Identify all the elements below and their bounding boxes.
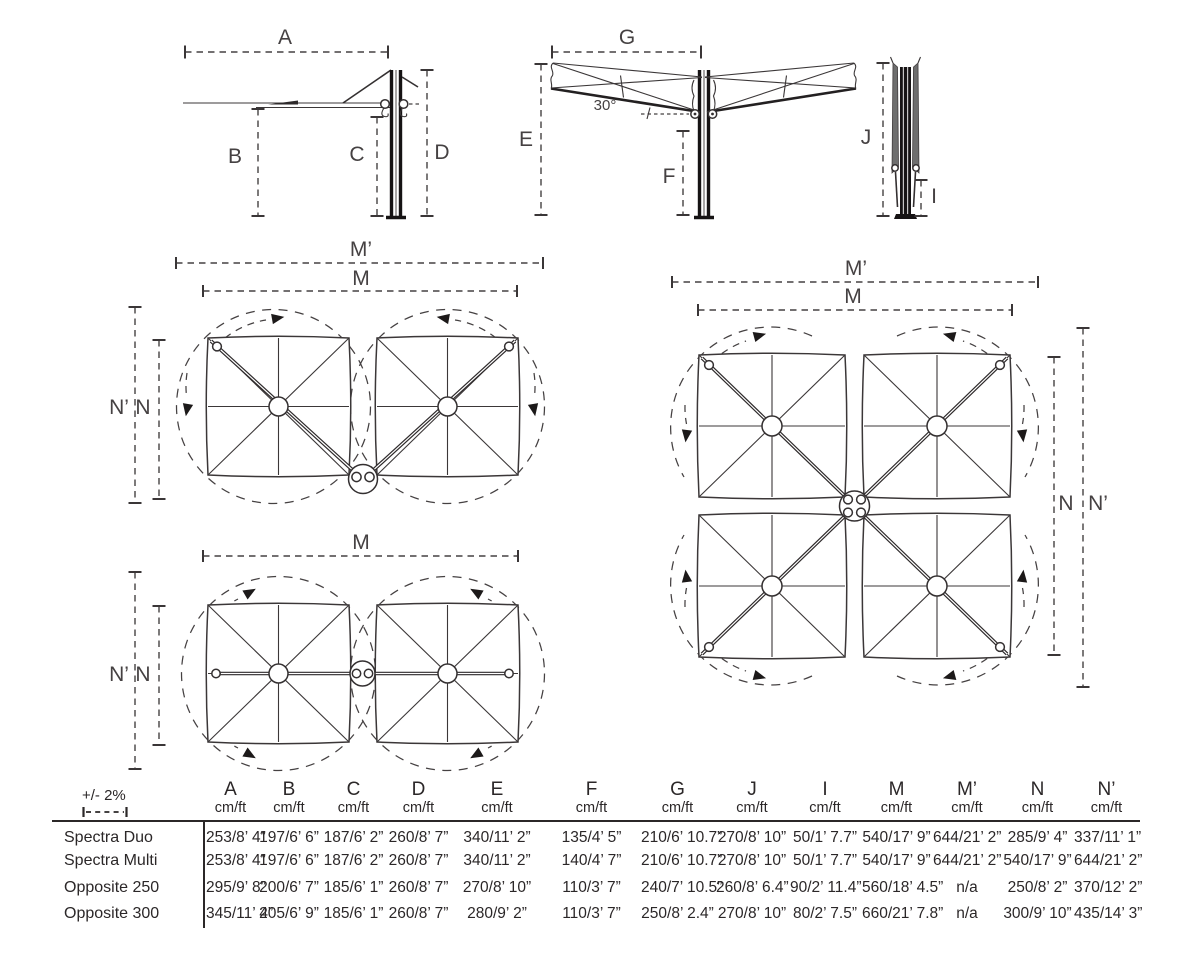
table-cell: 340/11’ 2” [451, 821, 543, 848]
rotation-arrow [942, 329, 957, 342]
rotation-arrow [753, 329, 768, 342]
plan-view-duo-corner: M’ M N’ N [109, 238, 544, 504]
col-header-b: Bcm/ft [257, 779, 321, 821]
col-header-m: Mcm/ft [861, 779, 932, 821]
table-cell: 210/6’ 10.7” [640, 848, 715, 875]
table-cell: 253/8’ 4” [204, 821, 257, 848]
edge-ring [212, 669, 220, 677]
table-cell: 260/8’ 6.4” [715, 875, 789, 902]
pole-top-view [350, 661, 375, 686]
corner-ring [213, 342, 222, 351]
dim-g: G [552, 26, 701, 59]
dim-label-e: E [519, 128, 533, 151]
col-header-a: Acm/ft [204, 779, 257, 821]
table-row: Opposite 250 295/9’ 8” 200/6’ 7” 185/6’ … [52, 875, 1140, 902]
table-cell: 197/6’ 6” [257, 848, 321, 875]
dim-label-f: F [663, 165, 676, 188]
table-cell: 50/1’ 7.7” [789, 848, 861, 875]
tolerance-label: +/- 2% [82, 787, 204, 805]
plan-view-duo-side: M N’ N [109, 531, 544, 771]
col-header-n-outer: N’cm/ft [1073, 779, 1140, 821]
table-cell: 197/6’ 6” [257, 821, 321, 848]
dim-label-m-outer: M’ [350, 238, 372, 261]
dim-n: N [135, 606, 165, 745]
pole-top-view [349, 465, 378, 494]
col-header-f: Fcm/ft [543, 779, 640, 821]
corner-ring [705, 361, 714, 370]
table-cell: 370/12’ 2” [1073, 875, 1140, 902]
dim-n: N [135, 340, 165, 499]
dim-m: M [203, 267, 517, 297]
col-header-g: Gcm/ft [640, 779, 715, 821]
side-view-tilted-duo: G [519, 26, 856, 218]
angle-label: 30° [594, 97, 617, 114]
right-wing [705, 63, 856, 112]
table-cell: 270/8’ 10” [715, 901, 789, 928]
table-cell: 260/8’ 7” [386, 821, 451, 848]
corner-ring [505, 342, 514, 351]
table-cell: 90/2’ 11.4” [789, 875, 861, 902]
side-view-closed: J I [861, 57, 937, 219]
table-cell: 260/8’ 7” [386, 901, 451, 928]
rotation-arrow [1017, 569, 1029, 583]
table-cell: 644/21’ 2” [932, 848, 1002, 875]
technical-diagrams: A B [0, 0, 1188, 778]
rotation-arrow [1017, 429, 1029, 443]
canopy-hub [269, 397, 288, 416]
dim-f: F [663, 131, 690, 215]
tolerance-dimension-icon [82, 807, 128, 817]
dim-d: D [421, 70, 450, 216]
table-cell: 187/6’ 2” [321, 821, 386, 848]
dim-m: M [203, 531, 518, 562]
dim-label-j: J [861, 126, 872, 149]
rib-hub [892, 165, 898, 171]
rotation-arrow [468, 747, 484, 762]
canopy-hub [438, 664, 457, 683]
dim-label-i: I [931, 185, 937, 208]
dim-label-m-outer: M’ [845, 257, 867, 280]
canopy-hub [438, 397, 457, 416]
row-label: Opposite 300 [52, 901, 204, 928]
umbrella-spec-sheet: A B [0, 0, 1188, 972]
dim-n: N [1048, 357, 1074, 655]
table-header-row: +/- 2% Acm/ft Bcm/ft Ccm/ft Dcm/ft Ecm/f… [52, 779, 1140, 821]
corner-ring [996, 643, 1005, 652]
table-cell: 540/17’ 9” [1002, 848, 1073, 875]
col-header-c: Ccm/ft [321, 779, 386, 821]
corner-ring [996, 361, 1005, 370]
rib-hub [913, 165, 919, 171]
dim-label-n-outer: N’ [109, 663, 129, 686]
dim-label-c: C [349, 143, 364, 166]
corner-ring [705, 643, 714, 652]
table-cell: 270/8’ 10” [451, 875, 543, 902]
table-row: Opposite 300 345/11’ 4” 205/6’ 9” 185/6’… [52, 901, 1140, 928]
canopy-hub [762, 576, 782, 596]
dim-a: A [185, 26, 388, 59]
table-cell: 50/1’ 7.7” [789, 821, 861, 848]
rotation-arrow [242, 584, 258, 599]
rotation-arrow [436, 312, 450, 324]
col-header-m-outer: M’cm/ft [932, 779, 1002, 821]
table-cell: 340/11’ 2” [451, 848, 543, 875]
table-cell: 300/9’ 10” [1002, 901, 1073, 928]
table-cell: 280/9’ 2” [451, 901, 543, 928]
rotation-arrow [528, 403, 540, 417]
table-cell: 540/17’ 9” [861, 848, 932, 875]
dim-label-g: G [619, 26, 635, 49]
table-cell: 250/8’ 2.4” [640, 901, 715, 928]
dim-label-m: M [352, 267, 370, 290]
pole [694, 70, 714, 218]
table-cell: 337/11’ 1” [1073, 821, 1140, 848]
dim-i: I [915, 180, 937, 216]
table-cell: 250/8’ 2” [1002, 875, 1073, 902]
table-row: Spectra Duo 253/8’ 4” 197/6’ 6” 187/6’ 2… [52, 821, 1140, 848]
dim-label-n: N [1058, 492, 1073, 515]
table-cell: 660/21’ 7.8” [861, 901, 932, 928]
table-cell: 644/21’ 2” [1073, 848, 1140, 875]
table-cell: 80/2’ 7.5” [789, 901, 861, 928]
table-cell: 240/7’ 10.5” [640, 875, 715, 902]
col-header-j: Jcm/ft [715, 779, 789, 821]
table-cell: 560/18’ 4.5” [861, 875, 932, 902]
dim-m-outer: M’ [176, 238, 543, 269]
rotation-arrow [753, 670, 768, 683]
rotation-arrow [242, 747, 258, 762]
canopy-hub [762, 416, 782, 436]
hub-pulleys [381, 100, 421, 117]
canopy-hub [927, 576, 947, 596]
table-cell: 140/4’ 7” [543, 848, 640, 875]
table-cell: 260/8’ 7” [386, 875, 451, 902]
edge-ring [505, 669, 513, 677]
table-cell: 210/6’ 10.7” [640, 821, 715, 848]
left-wing [551, 63, 702, 112]
col-header-e: Ecm/ft [451, 779, 543, 821]
row-label: Spectra Duo [52, 821, 204, 848]
table-cell: 205/6’ 9” [257, 901, 321, 928]
dim-c: C [349, 117, 383, 216]
dim-label-b: B [228, 145, 242, 168]
dim-e: E [519, 64, 548, 215]
table-cell: 185/6’ 1” [321, 901, 386, 928]
rotation-arrow [271, 312, 285, 324]
row-label: Spectra Multi [52, 848, 204, 875]
rotation-arrow [680, 569, 692, 583]
dim-label-m: M [844, 285, 862, 308]
table-cell: 345/11’ 4” [204, 901, 257, 928]
dim-n-outer: N’ [1077, 328, 1108, 687]
dim-b: B [228, 109, 265, 216]
col-header-n: Ncm/ft [1002, 779, 1073, 821]
pole [386, 70, 406, 218]
dimensions-table-grid: +/- 2% Acm/ft Bcm/ft Ccm/ft Dcm/ft Ecm/f… [52, 779, 1140, 928]
table-cell: 270/8’ 10” [715, 821, 789, 848]
table-cell: 110/3’ 7” [543, 875, 640, 902]
canopy-hub [269, 664, 288, 683]
dim-m-outer: M’ [672, 257, 1038, 288]
tolerance-header: +/- 2% [52, 779, 204, 821]
table-cell: 285/9’ 4” [1002, 821, 1073, 848]
table-cell: 435/14’ 3” [1073, 901, 1140, 928]
dim-label-n: N [135, 396, 150, 419]
plan-view-quad: M’ M N N’ [671, 257, 1108, 687]
table-cell: 540/17’ 9” [861, 821, 932, 848]
rotation-arrow [468, 584, 484, 599]
col-header-i: Icm/ft [789, 779, 861, 821]
table-cell: 644/21’ 2” [932, 821, 1002, 848]
table-cell: 253/8’ 4” [204, 848, 257, 875]
canopy-hub [927, 416, 947, 436]
dimensions-table: +/- 2% Acm/ft Bcm/ft Ccm/ft Dcm/ft Ecm/f… [52, 779, 1140, 928]
dim-m: M [698, 285, 1012, 316]
dim-label-a: A [278, 26, 292, 49]
dim-j: J [861, 63, 890, 216]
table-cell: 260/8’ 7” [386, 848, 451, 875]
dim-label-n-outer: N’ [109, 396, 129, 419]
dim-label-n-outer: N’ [1088, 492, 1108, 515]
table-cell: 135/4’ 5” [543, 821, 640, 848]
dim-label-m: M [352, 531, 370, 554]
table-cell: 110/3’ 7” [543, 901, 640, 928]
table-cell: 200/6’ 7” [257, 875, 321, 902]
rotation-arrow [680, 429, 692, 443]
pole-top-view [840, 491, 870, 521]
table-row: Spectra Multi 253/8’ 4” 197/6’ 6” 187/6’… [52, 848, 1140, 875]
table-cell: 187/6’ 2” [321, 848, 386, 875]
dim-label-d: D [434, 141, 449, 164]
col-header-d: Dcm/ft [386, 779, 451, 821]
rotation-arrow [942, 670, 957, 683]
dim-label-n: N [135, 663, 150, 686]
side-view-open: A B [183, 26, 450, 218]
table-cell: 185/6’ 1” [321, 875, 386, 902]
table-cell: 295/9’ 8” [204, 875, 257, 902]
row-label: Opposite 250 [52, 875, 204, 902]
table-cell: 270/8’ 10” [715, 848, 789, 875]
rotation-arrow [181, 403, 193, 417]
